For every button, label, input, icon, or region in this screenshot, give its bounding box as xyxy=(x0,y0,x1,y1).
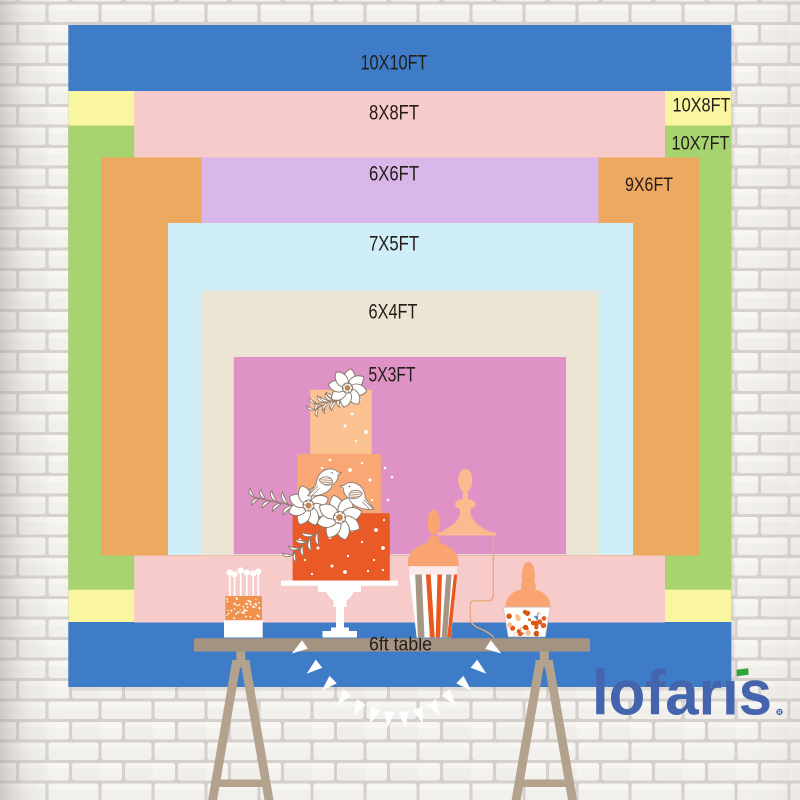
svg-text:10X8FT: 10X8FT xyxy=(673,96,731,117)
svg-text:6X6FT: 6X6FT xyxy=(369,163,419,186)
svg-text:9X6FT: 9X6FT xyxy=(625,175,673,196)
svg-text:6ft table: 6ft table xyxy=(369,635,432,656)
svg-text:7X5FT: 7X5FT xyxy=(369,233,419,256)
svg-text:5X3FT: 5X3FT xyxy=(369,364,416,387)
svg-text:10X10FT: 10X10FT xyxy=(361,52,428,75)
svg-text:R: R xyxy=(777,710,782,716)
svg-text:8X8FT: 8X8FT xyxy=(369,102,419,125)
svg-text:10X7FT: 10X7FT xyxy=(672,134,730,155)
svg-text:6X4FT: 6X4FT xyxy=(369,301,418,324)
